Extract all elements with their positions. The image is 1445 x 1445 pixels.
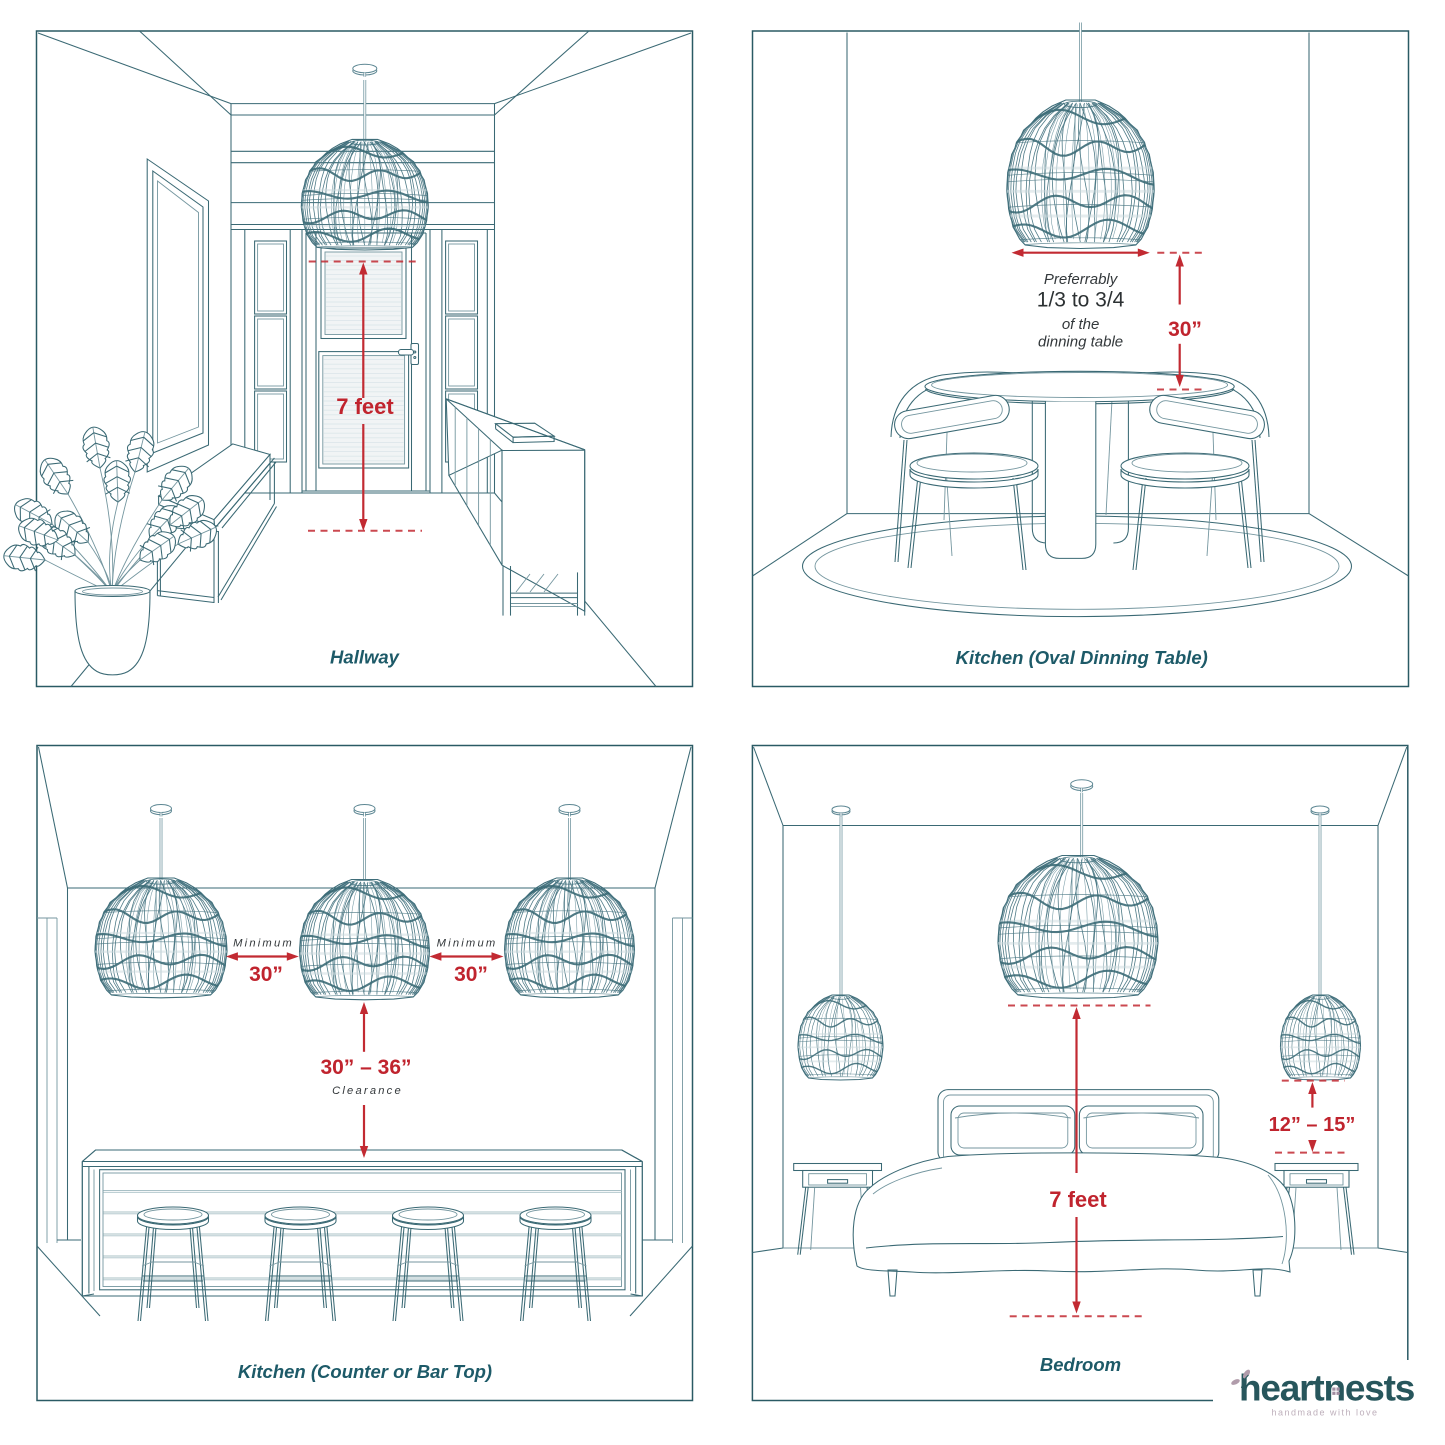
svg-text:30”: 30” bbox=[249, 963, 283, 986]
svg-text:Bedroom: Bedroom bbox=[1040, 1354, 1121, 1375]
svg-text:1/3 to 3/4: 1/3 to 3/4 bbox=[1037, 289, 1125, 312]
svg-text:Preferrably: Preferrably bbox=[1044, 271, 1119, 288]
svg-text:of the: of the bbox=[1062, 316, 1100, 333]
svg-text:30”: 30” bbox=[1168, 318, 1202, 341]
svg-text:Kitchen (Oval Dinning Table): Kitchen (Oval Dinning Table) bbox=[956, 647, 1208, 668]
svg-text:heartnests: heartnests bbox=[1239, 1368, 1415, 1409]
svg-text:30” – 36”: 30” – 36” bbox=[320, 1056, 411, 1079]
svg-text:30”: 30” bbox=[454, 963, 488, 986]
svg-text:7 feet: 7 feet bbox=[336, 394, 394, 419]
svg-text:handmade with love: handmade with love bbox=[1271, 1408, 1378, 1418]
svg-text:Clearance: Clearance bbox=[332, 1085, 403, 1097]
svg-text:Kitchen (Counter or Bar Top): Kitchen (Counter or Bar Top) bbox=[238, 1361, 492, 1382]
svg-text:Minimum: Minimum bbox=[437, 937, 498, 949]
svg-text:dinning table: dinning table bbox=[1038, 334, 1123, 351]
svg-text:Hallway: Hallway bbox=[330, 647, 401, 668]
svg-text:7 feet: 7 feet bbox=[1049, 1187, 1107, 1212]
svg-text:12” – 15”: 12” – 15” bbox=[1269, 1114, 1356, 1136]
svg-text:Minimum: Minimum bbox=[233, 937, 294, 949]
